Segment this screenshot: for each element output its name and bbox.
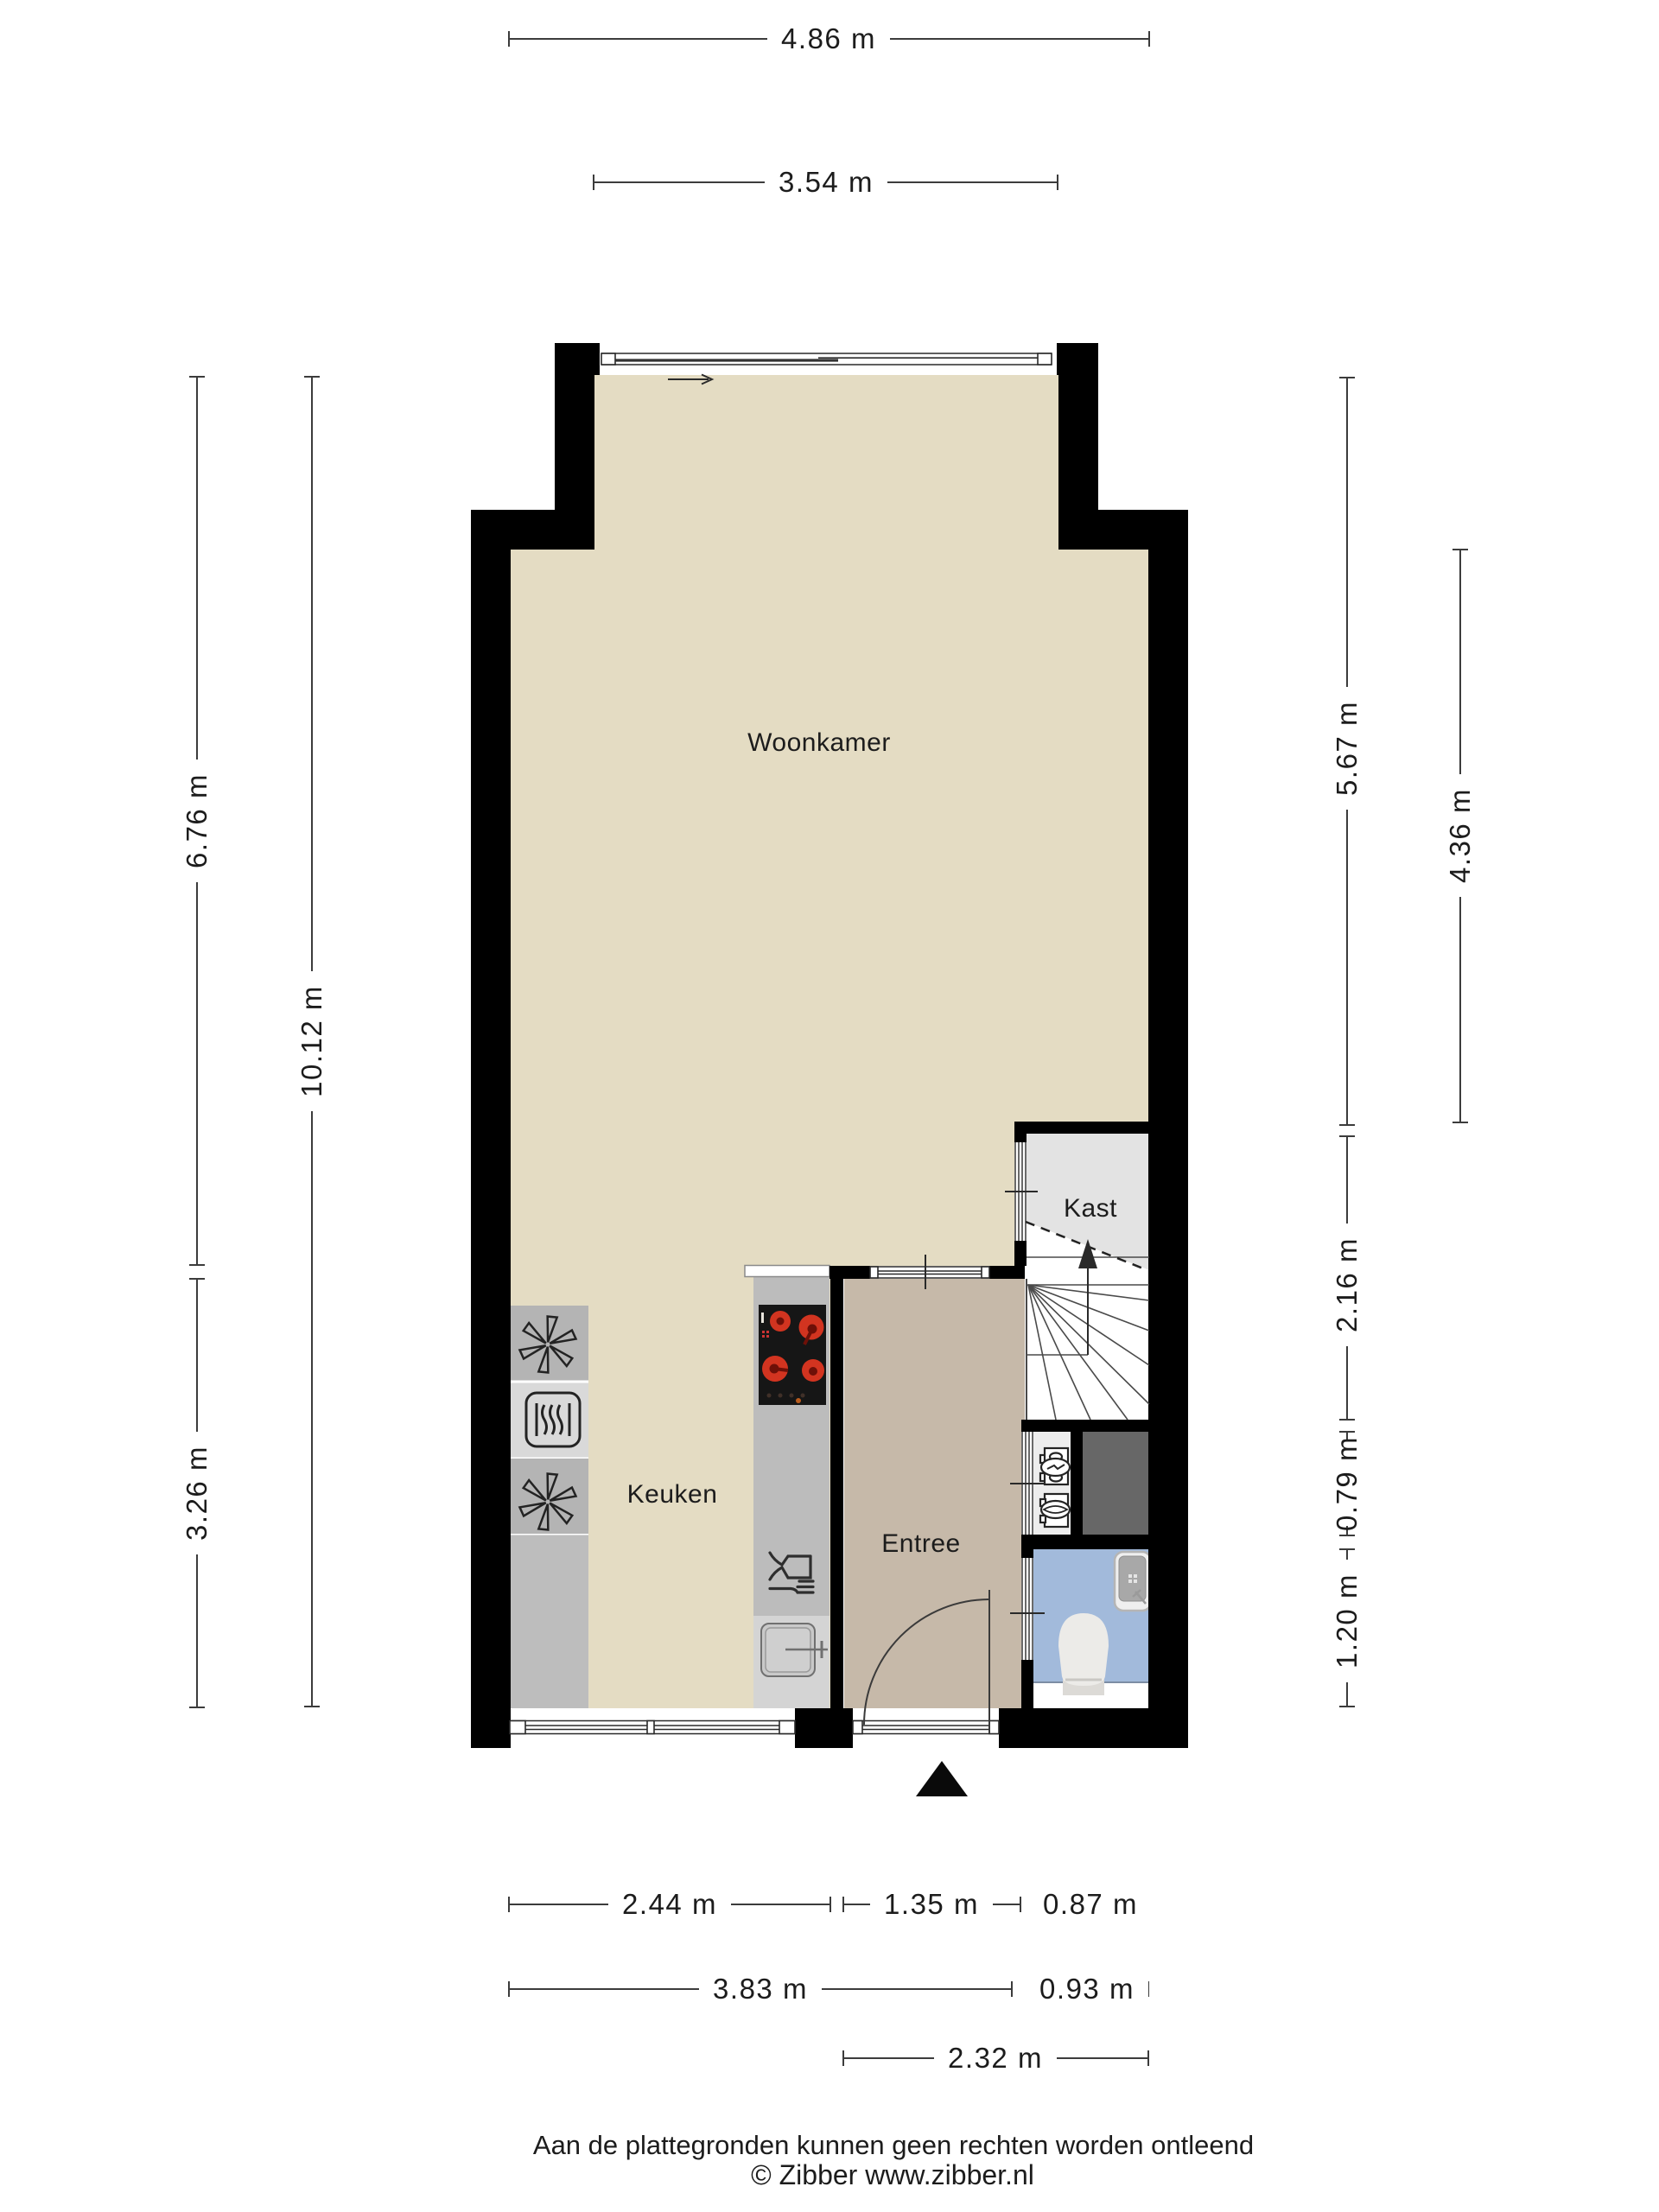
svg-text:Keuken: Keuken [627,1480,718,1509]
svg-text:1.20 m: 1.20 m [1331,1573,1363,1669]
svg-text:1.35 m: 1.35 m [884,1888,979,1920]
svg-text:4.86 m: 4.86 m [781,22,876,54]
svg-text:6.76 m: 6.76 m [181,773,213,868]
svg-text:Aan de plattegronden kunnen ge: Aan de plattegronden kunnen geen rechten… [533,2130,1254,2160]
svg-text:3.83 m: 3.83 m [713,1973,808,2005]
svg-text:0.93 m: 0.93 m [1039,1973,1135,2005]
svg-text:2.16 m: 2.16 m [1331,1237,1363,1332]
svg-text:Kast: Kast [1064,1194,1117,1223]
svg-text:3.26 m: 3.26 m [181,1446,213,1541]
svg-text:0.87 m: 0.87 m [1043,1888,1138,1920]
svg-text:Woonkamer: Woonkamer [747,728,891,757]
svg-text:10.12 m: 10.12 m [296,985,327,1097]
svg-text:4.36 m: 4.36 m [1444,788,1476,883]
svg-text:5.67 m: 5.67 m [1331,701,1363,796]
svg-text:3.54 m: 3.54 m [779,166,874,198]
svg-text:© Zibber www.zibber.nl: © Zibber www.zibber.nl [751,2159,1034,2190]
svg-text:Entree: Entree [881,1529,960,1558]
svg-text:2.44 m: 2.44 m [622,1888,717,1920]
svg-text:0.79 m: 0.79 m [1331,1436,1363,1531]
svg-text:2.32 m: 2.32 m [948,2042,1043,2074]
